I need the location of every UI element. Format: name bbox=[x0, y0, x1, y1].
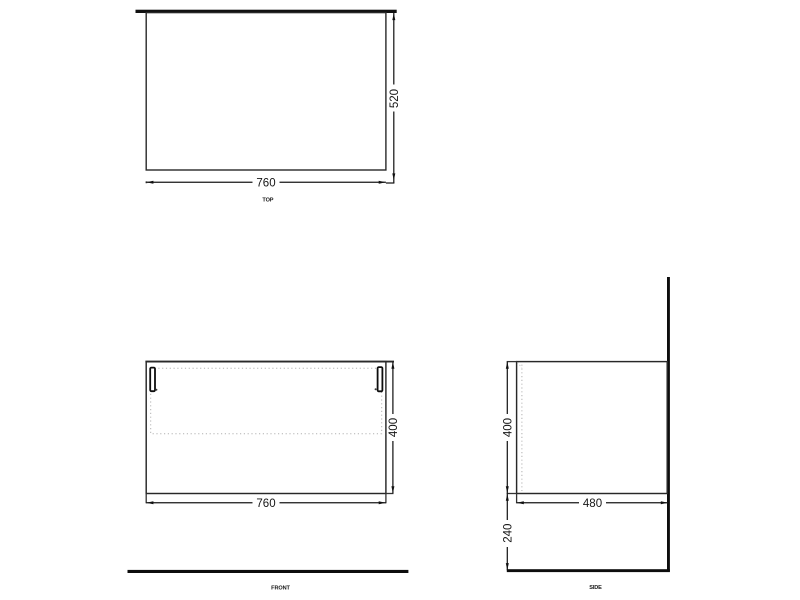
svg-text:TOP: TOP bbox=[262, 197, 273, 203]
svg-text:760: 760 bbox=[256, 498, 275, 510]
svg-text:FRONT: FRONT bbox=[271, 586, 290, 592]
svg-text:400: 400 bbox=[388, 418, 400, 437]
svg-text:760: 760 bbox=[256, 178, 275, 190]
svg-text:240: 240 bbox=[503, 524, 515, 543]
svg-text:480: 480 bbox=[583, 498, 602, 510]
svg-text:SIDE: SIDE bbox=[589, 585, 602, 591]
svg-text:520: 520 bbox=[389, 89, 401, 108]
svg-text:400: 400 bbox=[503, 418, 515, 437]
